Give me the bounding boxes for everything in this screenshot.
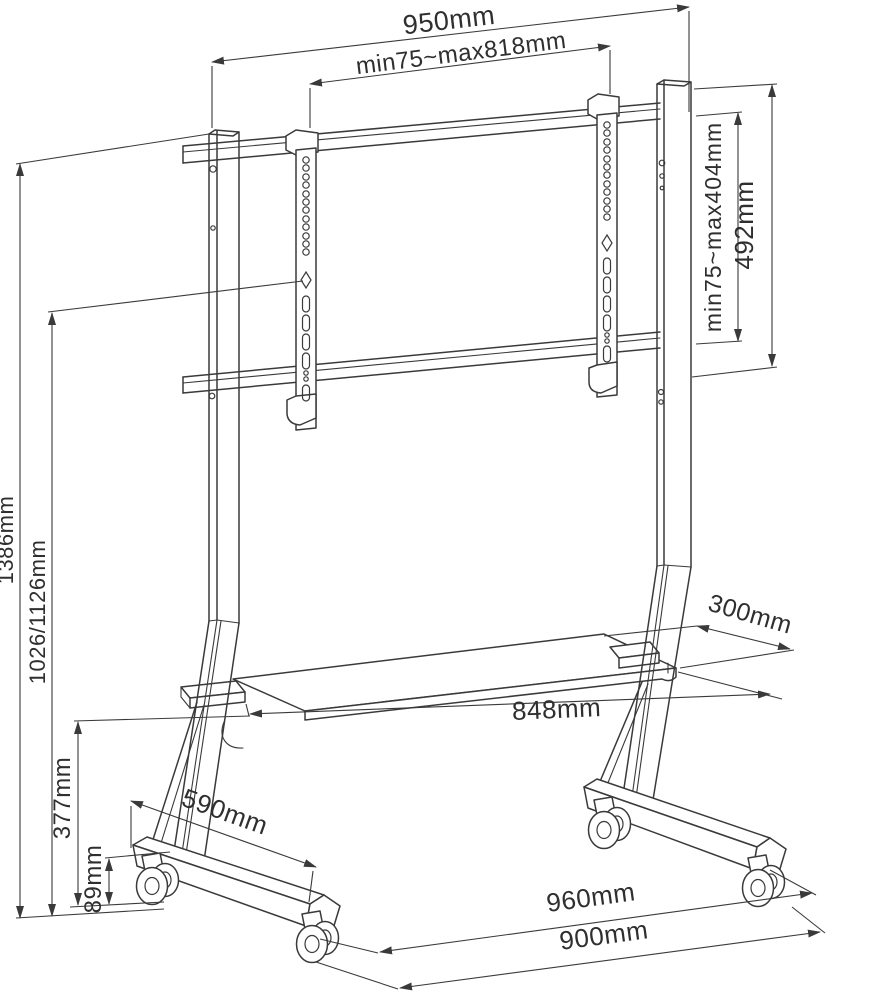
dim-label-89: 89mm — [80, 845, 107, 914]
bracket-bottom-hook — [287, 394, 316, 425]
dim-label-492: 492mm — [729, 180, 759, 269]
tv-stand-dimension-diagram: 950mm min75~max818mm min75~max404mm 492m… — [0, 0, 869, 992]
dim-label-1026-1126: 1026/1126mm — [25, 540, 50, 685]
dim-label-404: min75~max404mm — [700, 122, 726, 332]
dim-label-1386: 1386mm — [0, 496, 18, 585]
dim-label-377: 377mm — [49, 757, 76, 840]
dim-label-848: 848mm — [511, 692, 601, 726]
drawing-canvas: 950mm min75~max818mm min75~max404mm 492m… — [0, 0, 869, 992]
bracket-bottom-hook — [589, 362, 617, 393]
